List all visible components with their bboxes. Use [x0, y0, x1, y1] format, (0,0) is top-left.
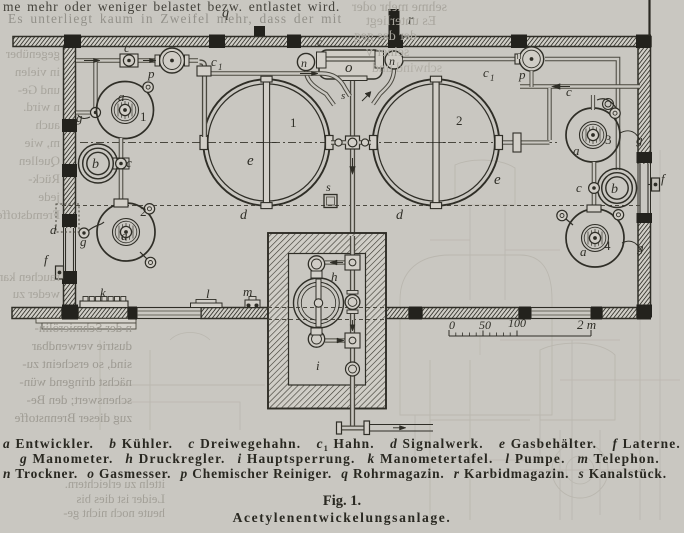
svg-text:a: a	[573, 143, 580, 158]
svg-text:d: d	[50, 222, 57, 237]
svg-text:1: 1	[140, 109, 147, 124]
svg-text:f: f	[661, 171, 667, 186]
svg-text:p: p	[147, 66, 155, 81]
svg-text:k: k	[100, 285, 106, 300]
svg-text:g: g	[76, 110, 83, 125]
svg-text:a: a	[121, 228, 128, 243]
svg-text:1: 1	[290, 115, 297, 130]
svg-text:c: c	[483, 65, 489, 80]
svg-text:c: c	[124, 40, 130, 55]
svg-text:e: e	[494, 172, 501, 188]
svg-text:e: e	[247, 153, 254, 169]
svg-text:c: c	[576, 180, 582, 195]
svg-text:i: i	[316, 358, 320, 373]
svg-text:n: n	[301, 56, 307, 70]
svg-text:p: p	[518, 67, 526, 82]
svg-text:m: m	[243, 284, 252, 299]
svg-text:l: l	[206, 286, 210, 301]
svg-text:1: 1	[490, 73, 495, 83]
svg-text:o: o	[345, 60, 353, 76]
svg-text:c: c	[211, 54, 217, 69]
svg-text:s: s	[326, 180, 331, 194]
svg-text:c: c	[317, 35, 323, 49]
svg-text:2 m: 2 m	[577, 317, 596, 332]
svg-text:s: s	[341, 90, 345, 102]
svg-text:4: 4	[604, 238, 611, 253]
svg-text:3: 3	[605, 132, 612, 147]
svg-text:g: g	[637, 240, 644, 255]
svg-text:2: 2	[456, 113, 463, 128]
svg-text:c: c	[566, 84, 572, 99]
svg-text:2: 2	[140, 204, 147, 219]
svg-text:0: 0	[449, 318, 455, 332]
svg-text:g: g	[636, 132, 643, 147]
svg-text:50: 50	[479, 318, 491, 332]
svg-text:f: f	[44, 252, 50, 267]
svg-text:d: d	[396, 208, 404, 223]
svg-text:a: a	[118, 89, 125, 104]
svg-text:100: 100	[508, 316, 526, 330]
svg-text:1: 1	[218, 62, 223, 72]
svg-text:c: c	[126, 155, 132, 170]
svg-text:h: h	[331, 269, 338, 284]
svg-text:b: b	[92, 157, 99, 172]
svg-text:a: a	[580, 244, 587, 259]
svg-text:b: b	[611, 182, 618, 197]
svg-text:d: d	[240, 208, 248, 223]
svg-text:g: g	[80, 234, 87, 249]
